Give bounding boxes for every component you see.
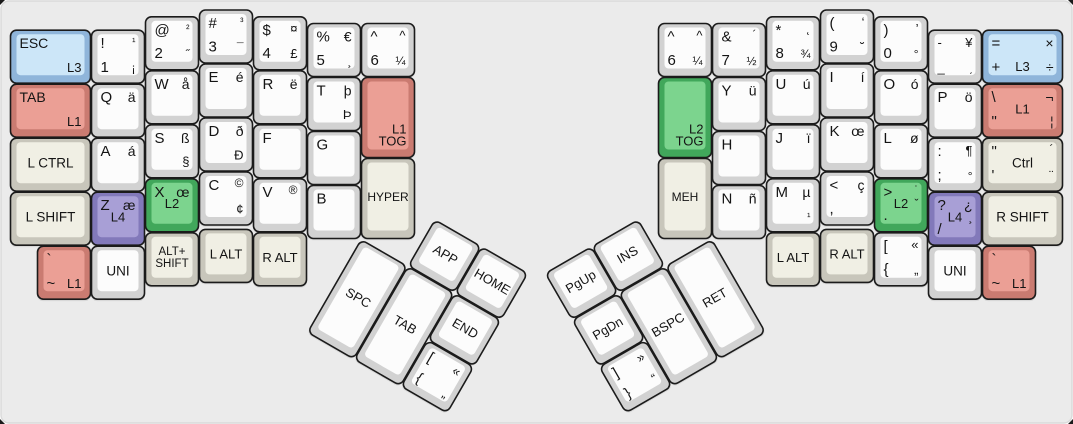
svg-text:F: F xyxy=(263,130,272,147)
svg-text:@: @ xyxy=(155,22,170,39)
svg-text:¼: ¼ xyxy=(692,54,703,68)
svg-text:D: D xyxy=(209,123,220,140)
svg-text:ˏ: ˏ xyxy=(969,63,973,75)
svg-text:(: ( xyxy=(830,15,835,32)
svg-text:£: £ xyxy=(290,46,298,61)
svg-text:UNI: UNI xyxy=(943,264,966,279)
svg-text:¾: ¾ xyxy=(800,47,811,61)
svg-text:‘: ‘ xyxy=(862,15,865,30)
svg-text:,: , xyxy=(830,201,834,218)
svg-text:C: C xyxy=(209,177,220,194)
svg-text:ð: ð xyxy=(236,123,244,139)
svg-text:-: - xyxy=(938,35,942,50)
svg-text:': ' xyxy=(992,167,995,184)
svg-text:¦: ¦ xyxy=(1050,114,1053,129)
svg-text:6: 6 xyxy=(371,52,379,69)
svg-text:&: & xyxy=(722,29,732,46)
svg-text:~: ~ xyxy=(992,275,1001,292)
svg-text:ä: ä xyxy=(128,89,136,105)
svg-text:*: * xyxy=(776,22,782,39)
svg-text:I: I xyxy=(830,69,834,86)
svg-text:G: G xyxy=(317,137,329,154)
svg-text:ç: ç xyxy=(858,177,865,193)
svg-text:¡: ¡ xyxy=(132,61,136,75)
svg-text:J: J xyxy=(776,130,784,147)
svg-text:TOG: TOG xyxy=(379,134,407,149)
svg-text:L2: L2 xyxy=(894,196,908,211)
svg-text:H: H xyxy=(722,137,733,154)
svg-text:X: X xyxy=(155,184,165,201)
svg-text:å: å xyxy=(182,76,190,92)
svg-text:^: ^ xyxy=(668,29,675,46)
svg-text:!: ! xyxy=(101,35,105,52)
svg-text:L1: L1 xyxy=(1015,101,1029,116)
svg-text:ü: ü xyxy=(749,83,757,99)
svg-text:E: E xyxy=(209,69,219,86)
svg-text:SHIFT: SHIFT xyxy=(155,258,188,270)
svg-text:Z: Z xyxy=(101,197,110,214)
svg-text:’: ’ xyxy=(916,21,919,36)
svg-text:L2: L2 xyxy=(165,196,179,211)
svg-text:6: 6 xyxy=(668,52,676,69)
svg-text:¤: ¤ xyxy=(290,21,297,36)
svg-text:L1: L1 xyxy=(67,276,81,291)
svg-text:ALT+: ALT+ xyxy=(159,246,186,258)
svg-text:R: R xyxy=(263,76,274,93)
svg-text:á: á xyxy=(128,143,136,159)
svg-text:L ALT: L ALT xyxy=(777,250,810,265)
svg-text:TOG: TOG xyxy=(676,134,704,149)
svg-text:`: ` xyxy=(47,251,52,268)
svg-text:´: ´ xyxy=(1050,142,1054,156)
svg-text:0: 0 xyxy=(884,45,892,62)
svg-text:W: W xyxy=(155,76,170,93)
svg-text:¸: ¸ xyxy=(969,210,973,224)
svg-text:°: ° xyxy=(914,47,919,61)
svg-text:®: ® xyxy=(289,183,298,197)
svg-text:~: ~ xyxy=(47,275,56,292)
svg-text:€: € xyxy=(344,29,352,45)
svg-text:ú: ú xyxy=(803,76,811,92)
svg-text:>: > xyxy=(884,184,893,201)
svg-text:B: B xyxy=(317,191,327,208)
svg-text:%: % xyxy=(317,29,330,46)
svg-text:í: í xyxy=(861,69,865,85)
svg-text:R SHIFT: R SHIFT xyxy=(996,210,1049,225)
svg-text:ö: ö xyxy=(965,89,973,105)
svg-text:Ctrl: Ctrl xyxy=(1012,156,1033,171)
svg-text:©: © xyxy=(235,176,244,190)
svg-text:ñ: ñ xyxy=(749,191,757,207)
svg-text:O: O xyxy=(884,76,896,93)
svg-text:L3: L3 xyxy=(1015,59,1029,74)
svg-text:;: ; xyxy=(938,167,942,184)
svg-text:×: × xyxy=(1045,35,1053,51)
svg-text:ë: ë xyxy=(290,76,298,92)
svg-text:¸: ¸ xyxy=(348,54,352,68)
svg-text:L4: L4 xyxy=(111,209,125,224)
svg-text:N: N xyxy=(722,191,733,208)
svg-text:+: + xyxy=(992,59,1001,76)
svg-text:ˇ: ˇ xyxy=(915,197,919,211)
svg-text:L1: L1 xyxy=(1012,276,1026,291)
svg-text:R ALT: R ALT xyxy=(829,247,864,262)
svg-text:¯: ¯ xyxy=(236,41,244,55)
svg-text:MEH: MEH xyxy=(672,190,699,204)
svg-text:´: ´ xyxy=(753,28,757,42)
svg-text:¼: ¼ xyxy=(395,54,406,68)
svg-text:°: ° xyxy=(968,169,973,183)
svg-text:é: é xyxy=(236,69,244,85)
svg-text:P: P xyxy=(938,89,948,106)
svg-text:ï: ï xyxy=(807,130,811,146)
svg-text:^: ^ xyxy=(371,29,378,46)
svg-text:?: ? xyxy=(938,197,946,214)
svg-text:ß: ß xyxy=(181,130,190,146)
svg-text:$: $ xyxy=(263,22,272,39)
svg-text:R ALT: R ALT xyxy=(262,250,297,265)
svg-text:˛: ˛ xyxy=(807,21,811,35)
svg-text:L CTRL: L CTRL xyxy=(27,156,74,171)
svg-text:M: M xyxy=(776,184,789,201)
svg-text:„: „ xyxy=(914,262,918,277)
svg-text:Đ: Đ xyxy=(234,148,243,163)
svg-text:_: _ xyxy=(937,60,946,75)
svg-text:<: < xyxy=(830,177,839,194)
svg-text:{: { xyxy=(884,261,889,278)
svg-text:ó: ó xyxy=(911,76,919,92)
svg-text:L ALT: L ALT xyxy=(210,247,243,262)
svg-text:L3: L3 xyxy=(67,60,81,75)
svg-text:#: # xyxy=(209,15,218,32)
svg-text:þ: þ xyxy=(344,83,352,99)
svg-text:§: § xyxy=(182,154,189,169)
svg-text:L: L xyxy=(884,130,892,147)
svg-text:µ: µ xyxy=(802,184,810,200)
svg-text:K: K xyxy=(830,123,840,140)
svg-text:HYPER: HYPER xyxy=(367,190,409,204)
svg-text:Q: Q xyxy=(101,89,113,106)
svg-text:V: V xyxy=(263,184,273,201)
svg-text:÷: ÷ xyxy=(1046,59,1054,75)
svg-text:=: = xyxy=(992,35,1001,52)
svg-text:L SHIFT: L SHIFT xyxy=(26,210,76,225)
svg-text:S: S xyxy=(155,130,165,147)
svg-text:7: 7 xyxy=(722,52,730,69)
svg-text:5: 5 xyxy=(317,52,325,69)
svg-text:8: 8 xyxy=(776,45,784,62)
svg-text:^: ^ xyxy=(696,28,703,43)
svg-text:¨: ¨ xyxy=(1049,168,1053,183)
svg-text:3: 3 xyxy=(209,39,217,56)
svg-text:L4: L4 xyxy=(948,209,962,224)
svg-text:": " xyxy=(992,143,997,160)
svg-text:A: A xyxy=(101,143,111,160)
svg-text:«: « xyxy=(911,237,918,252)
svg-text:9: 9 xyxy=(830,39,838,56)
svg-text:UNI: UNI xyxy=(106,264,129,279)
svg-text:": " xyxy=(992,113,997,130)
svg-text:^: ^ xyxy=(399,28,406,43)
svg-text:U: U xyxy=(776,76,787,93)
svg-text:): ) xyxy=(884,22,889,39)
svg-text::: : xyxy=(938,143,942,160)
svg-text:¢: ¢ xyxy=(236,202,243,217)
svg-text:¬: ¬ xyxy=(1045,89,1053,105)
svg-text:2: 2 xyxy=(155,45,163,62)
svg-text:Y: Y xyxy=(722,83,732,100)
svg-text:¶: ¶ xyxy=(966,143,973,158)
svg-text:œ: œ xyxy=(851,123,864,139)
svg-text:.: . xyxy=(884,207,888,224)
svg-text:½: ½ xyxy=(746,54,756,68)
svg-text:¥: ¥ xyxy=(964,35,973,50)
svg-text:4: 4 xyxy=(263,45,271,62)
svg-text:T: T xyxy=(317,83,326,100)
svg-text:L1: L1 xyxy=(67,114,81,129)
svg-text:1: 1 xyxy=(101,59,109,76)
svg-text:TAB: TAB xyxy=(20,89,46,105)
svg-text:Þ: Þ xyxy=(343,107,352,122)
svg-text:˘: ˘ xyxy=(859,40,864,55)
svg-text:ø: ø xyxy=(910,130,919,146)
svg-text:˙: ˙ xyxy=(915,183,919,197)
svg-text:`: ` xyxy=(992,251,997,268)
svg-text:ESC: ESC xyxy=(20,35,49,51)
